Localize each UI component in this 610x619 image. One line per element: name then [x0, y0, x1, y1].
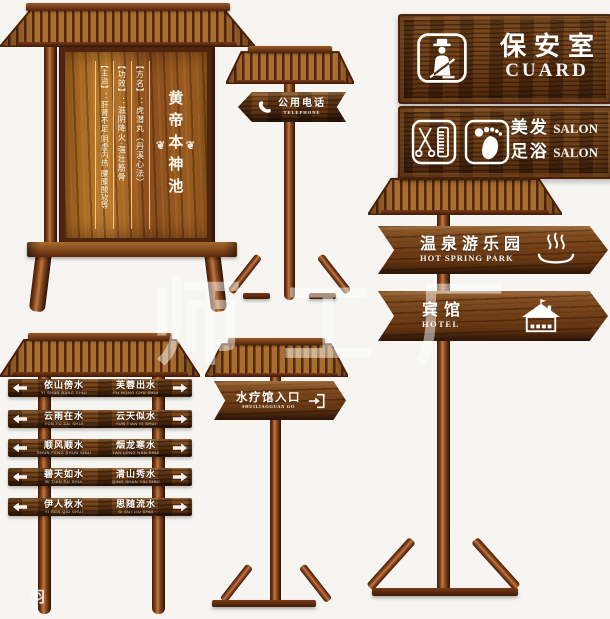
hotspring-base-right-strut	[471, 537, 521, 591]
phone-sign-roof	[226, 46, 354, 84]
guard-icon	[416, 32, 468, 84]
spa-roof	[205, 338, 348, 377]
hotel-arrow-sign: 宾馆 HOTEL	[378, 291, 608, 341]
house-icon	[518, 297, 564, 335]
enter-icon	[307, 392, 327, 410]
slat-3-right-en: YAN LONG HAN SHUI	[101, 451, 171, 455]
roof-eave-beam	[235, 80, 345, 84]
salon-row2-zh: 足浴	[511, 142, 549, 161]
roof-eave-beam	[215, 373, 338, 377]
phone-arrow-sign: 公用电话 TELEPHONE	[238, 92, 346, 122]
spa-base-right-strut	[299, 564, 332, 604]
roof-eave-beam	[12, 372, 188, 377]
hotspring-label-en: HOT SPRING PARK	[420, 253, 525, 263]
roof-eave-beam	[381, 210, 549, 215]
slat-3-left-en: SHUN FENG SHUN SHUI	[29, 451, 99, 455]
slat-3-right-zh: 烟龙寒水	[101, 441, 171, 450]
board-column-gongxiao: 【功效】：滋阴降火·强壮筋骨	[113, 61, 129, 229]
left-arrow-icon	[13, 384, 27, 393]
phone-base-left-foot	[243, 293, 270, 299]
phone-base-right-foot	[309, 293, 336, 299]
right-arrow-icon	[173, 503, 187, 512]
board-column-zhuzhi: 【主治】：肝肾不足·阴虚内热·腰膝酸软等	[95, 61, 111, 229]
slat-row-5: 伊人秋水YI REN QIU SHUI 思随流水SI SUI LIU SHUI	[8, 498, 192, 516]
slat-2-left-en: YUN YU ZAI SHUI	[29, 422, 99, 426]
slat-right-post	[152, 370, 165, 614]
notice-board-bench-bar	[27, 242, 237, 257]
hotel-label-zh: 宾馆	[422, 303, 466, 320]
phone-base-left-strut	[228, 254, 263, 295]
slat-4-right-en: QING SHAN XIU SHUI	[101, 480, 171, 484]
right-arrow-icon	[173, 415, 187, 424]
guard-plaque: 保安室 CUARD	[398, 14, 610, 104]
slat-row-4: 碧天如水BI TIAN RU SHUI 清山秀水QING SHAN XIU SH…	[8, 468, 192, 486]
signage-collection: ❦ 黄帝本神池 ❦ 【方名】：虎潜丸（丹溪心法） 【功效】：滋阴降火·强壮筋骨 …	[0, 0, 610, 619]
hotspring-label-zh: 温泉游乐园	[420, 237, 525, 254]
slat-roof	[0, 333, 200, 377]
slat-1-right-zh: 芙蓉出水	[101, 381, 171, 390]
spa-arrow-sign: 水疗馆入口 SHUILIAOGUAN GO	[214, 381, 346, 420]
slat-2-right-zh: 云天似水	[101, 412, 171, 421]
right-arrow-icon	[173, 384, 187, 393]
hotel-label-en: HOTEL	[422, 319, 466, 329]
roof-ridge-beam	[248, 46, 332, 53]
phone-icon	[257, 100, 272, 115]
slat-left-post	[38, 370, 51, 614]
slat-4-left-zh: 碧天如水	[29, 470, 99, 479]
guard-label-en: CUARD	[500, 60, 594, 82]
slat-1-left-zh: 依山傍水	[29, 381, 99, 390]
ornament-top: ❦	[183, 61, 196, 229]
scissors-comb-icon	[411, 119, 457, 165]
left-arrow-icon	[13, 503, 27, 512]
slat-1-right-en: FU RONG CHU SHUI	[101, 391, 171, 395]
notice-board-left-post	[44, 36, 57, 252]
salon-row1-en: SALON	[553, 121, 598, 136]
guard-label-zh: 保安室	[500, 33, 602, 60]
slat-4-right-zh: 清山秀水	[101, 470, 171, 479]
roof-ridge-beam	[28, 333, 172, 341]
notice-board-text: ❦ 黄帝本神池 ❦ 【方名】：虎潜丸（丹溪心法） 【功效】：滋阴降火·强壮筋骨 …	[65, 52, 207, 238]
spa-label-zh: 水疗馆入口	[236, 392, 301, 404]
hotspring-base-plate	[372, 588, 518, 596]
spa-base-plate	[212, 600, 316, 607]
phone-base-right-strut	[317, 254, 352, 295]
board-title-column: ❦ 黄帝本神池 ❦	[149, 61, 199, 229]
slat-3-left-zh: 顺风顺水	[29, 441, 99, 450]
salon-plaque: 美发 SALON 足浴 SALON	[398, 106, 610, 179]
ornament-bottom: ❦	[153, 61, 166, 229]
board-title: 黄帝本神池	[166, 90, 183, 200]
board-column-fangming: 【方名】：虎潜丸（丹溪心法）	[131, 61, 147, 229]
notice-board-left-leg	[29, 251, 52, 313]
left-arrow-icon	[13, 444, 27, 453]
spa-label-en: SHUILIAOGUAN GO	[236, 404, 301, 409]
slat-2-right-en: YUN TIAN SI SHUI	[101, 422, 171, 426]
slat-4-left-en: BI TIAN RU SHUI	[29, 480, 99, 484]
slat-row-2: 云雨在水YUN YU ZAI SHUI 云天似水YUN TIAN SI SHUI	[8, 410, 192, 428]
hotspring-base-left-strut	[366, 537, 416, 591]
salon-row1-zh: 美发	[511, 118, 549, 137]
roof-ridge-beam	[228, 338, 325, 345]
slat-5-right-en: SI SUI LIU SHUI	[101, 510, 171, 514]
foot-icon	[464, 119, 510, 165]
hot-spring-icon	[535, 231, 577, 269]
slat-1-left-en: YI SHAN BANG SHUI	[29, 391, 99, 395]
left-arrow-icon	[13, 415, 27, 424]
slat-5-left-en: YI REN QIU SHUI	[29, 510, 99, 514]
right-arrow-icon	[173, 473, 187, 482]
hotspring-arrow-sign: 温泉游乐园 HOT SPRING PARK	[378, 226, 608, 274]
salon-row2-en: SALON	[553, 145, 598, 160]
slat-row-1: 依山傍水YI SHAN BANG SHUI 芙蓉出水FU RONG CHU SH…	[8, 379, 192, 397]
phone-sign-label-en: TELEPHONE	[278, 110, 326, 115]
phone-sign-label-zh: 公用电话	[278, 99, 326, 110]
spa-base-left-strut	[220, 564, 253, 604]
slat-5-left-zh: 伊人秋水	[29, 500, 99, 509]
slat-5-right-zh: 思随流水	[101, 500, 171, 509]
right-arrow-icon	[173, 444, 187, 453]
left-arrow-icon	[13, 473, 27, 482]
notice-board-panel: ❦ 黄帝本神池 ❦ 【方名】：虎潜丸（丹溪心法） 【功效】：滋阴降火·强壮筋骨 …	[60, 47, 212, 243]
notice-board-right-leg	[204, 251, 227, 313]
roof-ridge-beam	[26, 3, 230, 11]
slat-2-left-zh: 云雨在水	[29, 412, 99, 421]
slat-row-3: 顺风顺水SHUN FENG SHUN SHUI 烟龙寒水YAN LONG HAN…	[8, 439, 192, 457]
notice-board-roof	[0, 3, 255, 47]
